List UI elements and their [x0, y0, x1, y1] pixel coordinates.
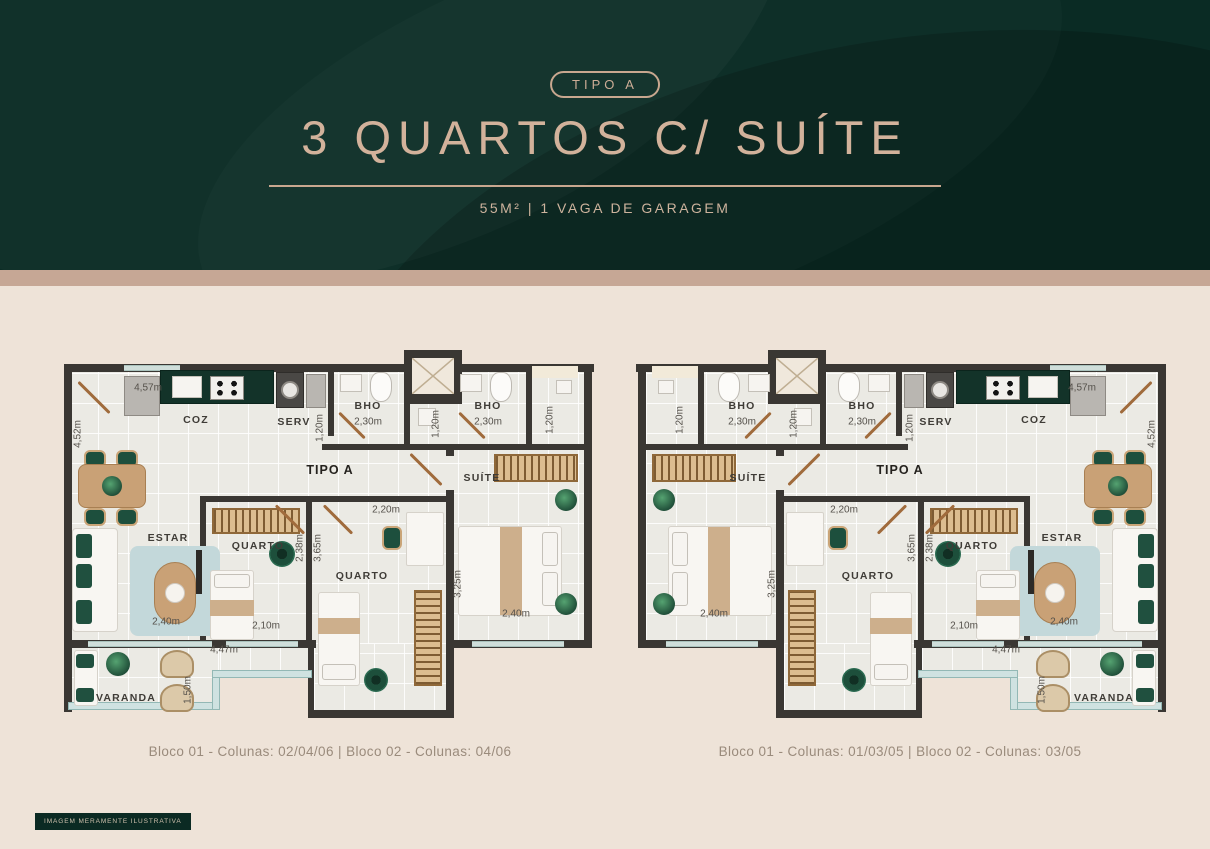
measure-label: 1,20m: [675, 406, 686, 434]
facade-notch: [532, 366, 578, 378]
bed-pillow: [214, 574, 250, 588]
measure-label: 1,20m: [315, 414, 326, 442]
measure-label: 1,50m: [183, 676, 194, 704]
type-badge: TIPO A: [550, 71, 660, 98]
flyer-page: TIPO A 3 QUARTOS C/ SUÍTE 55M² | 1 VAGA …: [0, 0, 1210, 849]
sofa-pillow: [76, 688, 94, 702]
measure-label: 4,52m: [73, 420, 84, 448]
desk: [406, 512, 444, 566]
centerpiece-plant: [1108, 476, 1128, 496]
wall-bath-row: [776, 444, 908, 450]
desk-chair: [828, 526, 848, 550]
dining-chair: [84, 508, 106, 526]
room-label: BHO: [849, 400, 876, 412]
measure-label: 2,30m: [474, 417, 502, 428]
dining-chair: [116, 508, 138, 526]
room-label: BHO: [729, 400, 756, 412]
centerpiece-plant: [102, 476, 122, 496]
room-label: ESTAR: [148, 532, 189, 544]
measure-label: 2,40m: [152, 617, 180, 628]
measure-label: 1,20m: [431, 410, 442, 438]
room-label: SUÍTE: [730, 472, 767, 484]
sofa-pillow: [76, 534, 92, 558]
plant: [555, 593, 577, 615]
title-divider: [269, 185, 941, 187]
wall-bho2-right: [698, 366, 704, 444]
room-label: COZ: [183, 414, 209, 426]
plant: [653, 593, 675, 615]
wall-col-left: [916, 640, 922, 718]
room-label: QUARTO: [336, 570, 389, 582]
kitchen-sink: [172, 376, 202, 398]
round-rug: [364, 668, 388, 692]
bed-throw: [870, 618, 912, 634]
measure-label: 2,10m: [252, 621, 280, 632]
rattan-chair: [160, 650, 194, 678]
elevator-shaft: [768, 350, 826, 402]
measure-label: 4,57m: [1068, 383, 1096, 394]
coffee-tray: [1045, 583, 1065, 603]
wc-sink: [658, 380, 674, 394]
plant: [653, 489, 675, 511]
measure-label: 2,38m: [925, 534, 936, 562]
bed-pillow: [874, 664, 908, 680]
desk-chair: [382, 526, 402, 550]
room-label: SERV: [919, 416, 952, 428]
measure-label: 2,20m: [372, 505, 400, 516]
wall-serv-right: [328, 366, 334, 436]
wall-right: [584, 364, 592, 648]
toilet: [370, 372, 392, 402]
plan-caption-left: Bloco 01 - Colunas: 02/04/06 | Bloco 02 …: [60, 744, 600, 759]
toilet: [838, 372, 860, 402]
measure-label: 3,65m: [313, 534, 324, 562]
laundry-tub: [904, 374, 924, 408]
wall-right: [638, 364, 646, 648]
rattan-chair: [1036, 650, 1070, 678]
wardrobe: [930, 508, 1018, 534]
plant: [106, 652, 130, 676]
tv: [1028, 550, 1034, 594]
tv: [196, 550, 202, 594]
sofa-pillow: [1136, 654, 1154, 668]
hero-header: TIPO A 3 QUARTOS C/ SUÍTE 55M² | 1 VAGA …: [0, 0, 1210, 270]
wardrobe: [212, 508, 300, 534]
kitchen-sink: [1028, 376, 1058, 398]
laundry-tub: [306, 374, 326, 408]
window-sill: [666, 641, 758, 647]
measure-label: 2,40m: [502, 609, 530, 620]
bathroom-sink: [748, 374, 770, 392]
wc-sink: [556, 380, 572, 394]
bed-throw: [210, 600, 254, 616]
wardrobe: [652, 454, 736, 482]
wall-quartos-top: [200, 496, 452, 502]
wall-bath2-row: [644, 444, 776, 450]
measure-label: 2,20m: [830, 505, 858, 516]
wall-col-bottom: [776, 710, 922, 718]
measure-label: 1,20m: [545, 406, 556, 434]
measure-label: 3,65m: [907, 534, 918, 562]
measure-label: 4,57m: [134, 383, 162, 394]
page-title: 3 QUARTOS C/ SUÍTE: [0, 110, 1210, 165]
room-label: QUARTO: [946, 540, 999, 552]
coffee-tray: [165, 583, 185, 603]
bathroom-sink: [868, 374, 890, 392]
wall-quarto-divider: [918, 496, 924, 640]
room-label: BHO: [475, 400, 502, 412]
room-label: QUARTO: [232, 540, 285, 552]
wall-col-left: [308, 640, 314, 718]
measure-label: 2,30m: [728, 417, 756, 428]
sofa-pillow: [1138, 534, 1154, 558]
measure-label: 2,40m: [1050, 617, 1078, 628]
sofa-pillow: [1136, 688, 1154, 702]
accent-band: [0, 270, 1210, 286]
measure-label: 2,10m: [950, 621, 978, 632]
bed-pillow: [980, 574, 1016, 588]
measure-label: 1,20m: [789, 410, 800, 438]
glass-wall: [918, 670, 1018, 678]
wardrobe: [494, 454, 578, 482]
room-label: COZ: [1021, 414, 1047, 426]
bathroom-sink: [340, 374, 362, 392]
wall-quartos-top: [778, 496, 1030, 502]
wall-left: [1158, 364, 1166, 648]
wall-serv-right: [896, 366, 902, 436]
disclaimer-badge: IMAGEM MERAMENTE ILUSTRATIVA: [35, 813, 191, 830]
plan-caption-right: Bloco 01 - Colunas: 01/03/05 | Bloco 02 …: [630, 744, 1170, 759]
room-label: VARANDA: [1074, 692, 1134, 704]
measure-label: 4,47m: [992, 645, 1020, 656]
sofa-pillow: [76, 564, 92, 588]
window-sill: [1018, 641, 1142, 647]
washer-drum: [931, 381, 949, 399]
room-label: SUÍTE: [464, 472, 501, 484]
bed-throw: [500, 527, 522, 615]
stove: [210, 376, 244, 400]
page-subtitle: 55M² | 1 VAGA DE GARAGEM: [0, 200, 1210, 216]
bed-pillow: [542, 532, 558, 566]
sofa-pillow: [76, 600, 92, 624]
wall-col-bottom: [308, 710, 454, 718]
round-rug: [842, 668, 866, 692]
dining-chair: [1124, 508, 1146, 526]
toilet: [718, 372, 740, 402]
glass-wall: [212, 670, 312, 678]
measure-label: 4,52m: [1147, 420, 1158, 448]
wall-suite-left: [776, 490, 784, 718]
measure-label: 3,25m: [767, 570, 778, 598]
sofa-pillow: [1138, 600, 1154, 624]
window-sill: [88, 641, 212, 647]
stove: [986, 376, 1020, 400]
bed-throw: [318, 618, 360, 634]
floor-plan-left: 4,57m4,52mCOZSERV1,20mBHO2,30m1,20mBHO2,…: [60, 350, 600, 725]
measure-label: 2,40m: [700, 609, 728, 620]
room-label: SERV: [277, 416, 310, 428]
sofa-pillow: [1138, 564, 1154, 588]
plant: [555, 489, 577, 511]
plant: [1100, 652, 1124, 676]
bed-throw: [976, 600, 1020, 616]
plan-type-label: TIPO A: [306, 463, 353, 477]
dining-chair: [1092, 508, 1114, 526]
room-label: BHO: [355, 400, 382, 412]
wall-quarto-divider: [306, 496, 312, 640]
bed-throw: [708, 527, 730, 615]
measure-label: 2,30m: [354, 417, 382, 428]
bed-pillow: [672, 532, 688, 566]
measure-label: 4,47m: [210, 645, 238, 656]
plan-type-label: TIPO A: [876, 463, 923, 477]
sofa-pillow: [76, 654, 94, 668]
measure-label: 3,25m: [453, 570, 464, 598]
room-label: VARANDA: [96, 692, 156, 704]
wardrobe: [788, 590, 816, 686]
elevator-shaft: [404, 350, 462, 402]
bed-pillow: [322, 664, 356, 680]
washer-drum: [281, 381, 299, 399]
wall-bath2-row: [454, 444, 586, 450]
room-label: ESTAR: [1042, 532, 1083, 544]
wardrobe: [414, 590, 442, 686]
wall-suite-left: [446, 490, 454, 718]
measure-label: 1,20m: [905, 414, 916, 442]
measure-label: 1,50m: [1037, 676, 1048, 704]
floor-plan-right: 4,57m4,52mCOZSERV1,20mBHO2,30m1,20mBHO2,…: [630, 350, 1170, 725]
desk: [786, 512, 824, 566]
window-sill: [472, 641, 564, 647]
measure-label: 2,30m: [848, 417, 876, 428]
bathroom-sink: [460, 374, 482, 392]
facade-notch: [652, 366, 698, 378]
room-label: QUARTO: [842, 570, 895, 582]
toilet: [490, 372, 512, 402]
wall-left: [64, 364, 72, 648]
measure-label: 2,38m: [295, 534, 306, 562]
wall-bath-row: [322, 444, 454, 450]
